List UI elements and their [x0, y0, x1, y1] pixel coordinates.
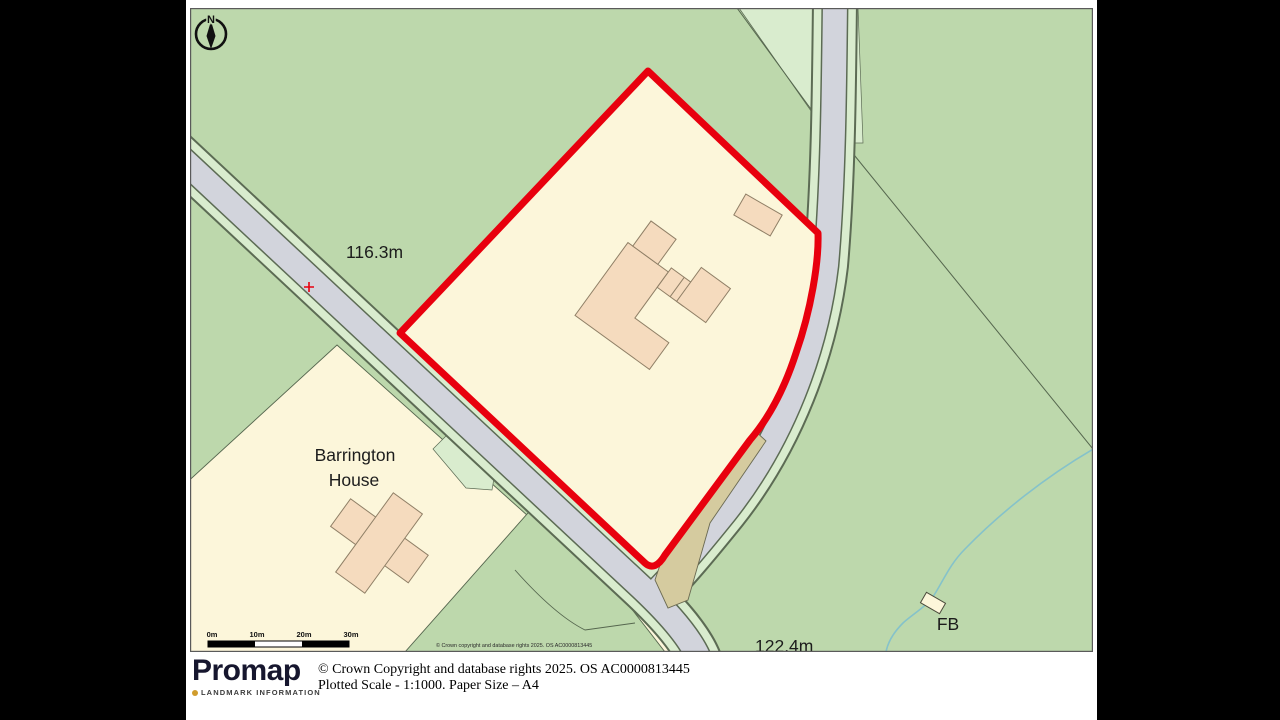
plan-footer: Promap LANDMARK INFORMATION © Crown Copy… — [190, 654, 1089, 716]
compass-north-label: N — [207, 14, 215, 26]
map-copyright-text: © Crown copyright and database rights 20… — [436, 642, 592, 649]
barrington-house-label: House — [329, 470, 380, 490]
scale-tick-label: 10m — [249, 630, 264, 639]
screenshot-canvas: 116.3m Barrington House 122.4m FB © Crow… — [0, 0, 1280, 720]
plan-page: 116.3m Barrington House 122.4m FB © Crow… — [186, 0, 1097, 720]
footer-scale-line: Plotted Scale - 1:1000. Paper Size – A4 — [318, 678, 690, 694]
landmark-tagline: LANDMARK INFORMATION — [192, 688, 316, 697]
footer-copyright-line: © Crown Copyright and database rights 20… — [318, 662, 690, 678]
promap-logo: Promap LANDMARK INFORMATION — [190, 654, 316, 697]
landmark-dot-icon — [192, 690, 198, 696]
scale-tick-label: 0m — [207, 630, 218, 639]
site-plan-map: 116.3m Barrington House 122.4m FB © Crow… — [190, 8, 1093, 652]
barrington-house-label: Barrington — [315, 445, 396, 465]
landmark-tagline-text: LANDMARK INFORMATION — [201, 688, 321, 697]
footer-copyright-block: © Crown Copyright and database rights 20… — [318, 662, 690, 693]
footbridge-label: FB — [937, 614, 959, 634]
scale-tick-label: 30m — [343, 630, 358, 639]
scale-tick-label: 20m — [296, 630, 311, 639]
promap-brand-text: Promap — [192, 656, 316, 686]
spot-height-label: 116.3m — [346, 242, 403, 262]
spot-height-label: 122.4m — [755, 636, 813, 652]
